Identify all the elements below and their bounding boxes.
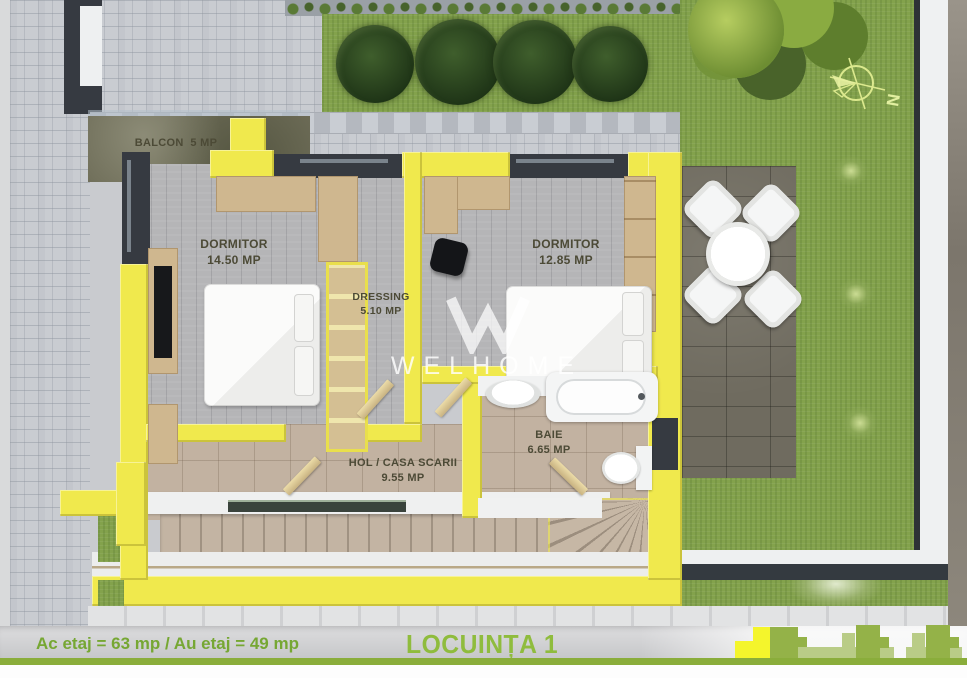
bathtub-faucet (638, 393, 645, 400)
stone-edge-right (948, 0, 967, 628)
buildings-logo-shoulder-3 (912, 633, 925, 649)
stairs-straight (160, 514, 560, 554)
wall-top-segment-1 (210, 150, 274, 178)
bedroom-1-area: 14.50 MP (166, 252, 302, 268)
tv-screen (154, 266, 172, 358)
patio-table (706, 222, 770, 286)
bath-ledge (478, 498, 602, 518)
buildings-logo-tower-2 (856, 625, 880, 658)
buildings-logo-tower-3 (926, 625, 950, 658)
welhome-logo-icon (446, 292, 530, 354)
buildings-logo-tab-2 (880, 637, 889, 648)
sapling-3 (836, 400, 884, 446)
bedroom-2-area: 12.85 MP (498, 252, 634, 268)
stair-landing-lower (92, 552, 664, 576)
fence-right-wall (920, 0, 948, 556)
bed-1-pillow (294, 346, 314, 396)
watermark-text: WELHOME (372, 352, 602, 381)
buildings-logo-tab-3 (950, 637, 959, 648)
floor-area-summary: Ac etaj = 63 mp / Au etaj = 49 mp (36, 634, 299, 654)
left-edge-strip (0, 0, 10, 628)
footer-white-strip (0, 665, 967, 678)
sapling-1 (828, 150, 874, 192)
label-balcony: BALCON 5 MP (116, 136, 236, 151)
bathroom-name: BAIE (498, 428, 600, 443)
window-glass-top-1 (300, 159, 388, 163)
window-glass-left (127, 160, 131, 252)
window-band-right (652, 418, 678, 470)
cabinet-corner (318, 176, 358, 262)
wall-arm-left (60, 490, 122, 516)
hall-name: HOL / CASA SCARII (312, 456, 494, 471)
bench (148, 404, 178, 464)
toilet-bowl (602, 452, 640, 484)
buildings-logo-tower-1 (770, 627, 798, 658)
bathroom-area: 6.65 MP (498, 443, 600, 458)
bedroom-2-name: DORMITOR (498, 236, 634, 252)
hall-area: 9.55 MP (312, 471, 494, 486)
buildings-logo-shoulder-2 (842, 633, 855, 649)
bush-4 (572, 26, 648, 102)
sink (486, 380, 540, 408)
label-hall: HOL / CASA SCARII 9.55 MP (312, 456, 494, 486)
bathtub-basin (556, 379, 646, 415)
bedroom-1-name: DORMITOR (166, 236, 302, 252)
buildings-logo-base-1 (798, 647, 836, 658)
sapling-2 (832, 272, 880, 316)
balcony-name: BALCON (135, 137, 184, 149)
deck-strip-bottom (88, 606, 948, 628)
label-bathroom: BAIE 6.65 MP (498, 428, 600, 458)
label-bedroom-1: DORMITOR 14.50 MP (166, 236, 302, 268)
compass-north-label: N (882, 92, 903, 107)
unit-title: LOCUINȚA 1 (406, 629, 558, 660)
house-wall-bottom (92, 576, 682, 606)
fence-bottom-shadow (682, 564, 948, 580)
garden-patch-left-2 (98, 580, 124, 606)
bush-1 (336, 25, 414, 103)
dressing-area: 5.10 MP (332, 304, 430, 318)
cabinet-top (216, 176, 316, 212)
dressing-name: DRESSING (332, 290, 430, 304)
fence-bottom-wall (682, 550, 948, 564)
accent-line (0, 658, 967, 665)
label-dressing: DRESSING 5.10 MP (332, 290, 430, 318)
balcony-area: 5 MP (190, 137, 217, 149)
buildings-logo-yellow-tower (753, 627, 770, 658)
desk-return (424, 176, 458, 234)
bed-2-pillow (622, 292, 644, 336)
bed-1-pillow (294, 294, 314, 342)
floor-plan-render: N (0, 0, 967, 678)
compass-icon: N (828, 56, 912, 120)
bush-2 (415, 19, 501, 105)
garden-wall-panel (80, 6, 102, 86)
stair-rail-opening (228, 500, 406, 512)
bush-3 (493, 20, 577, 104)
wall-dressing-right (404, 152, 422, 424)
label-bedroom-2: DORMITOR 12.85 MP (498, 236, 634, 268)
wall-arm-left-vertical (116, 462, 146, 546)
window-glass-top-2 (516, 159, 614, 163)
